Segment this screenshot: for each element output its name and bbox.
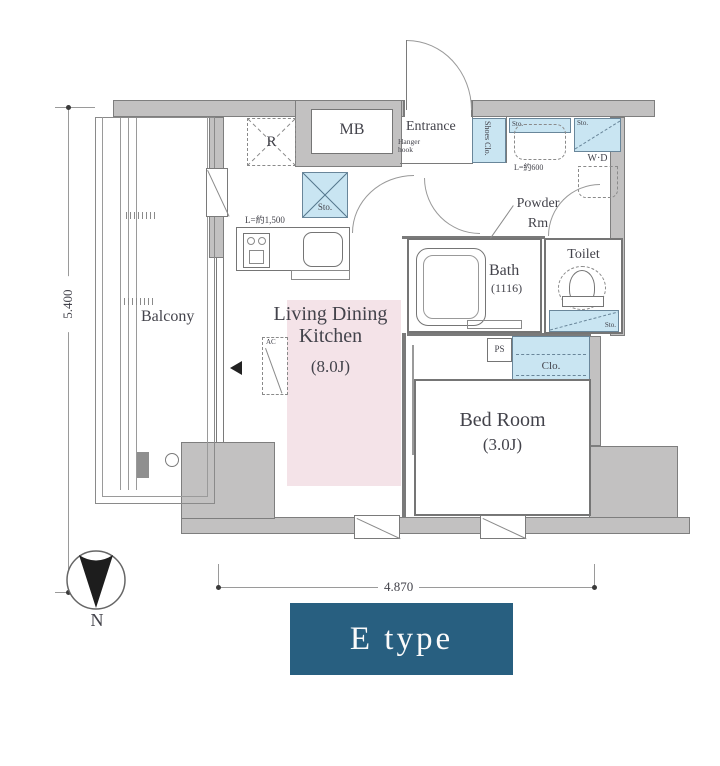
toilet-tank: [562, 296, 604, 307]
bathtub-inner: [423, 255, 479, 319]
closet: Clo.: [512, 336, 590, 382]
kitchen-storage: Sto.: [302, 172, 348, 218]
refrigerator-label: R: [248, 134, 295, 151]
bedroom-window-swing: [483, 518, 527, 539]
entrance-label: Entrance: [406, 119, 456, 134]
ldk-bedroom-sliding-panel: [412, 345, 414, 455]
ac-diagonal: [265, 348, 282, 393]
shoes-closet-label: Shoes Clo.: [482, 121, 491, 156]
closet-pipe-line-1: [516, 354, 586, 355]
powder-line1: Powder: [517, 196, 560, 211]
dim-left-dot-top: [66, 105, 71, 110]
wall-right-block: [589, 446, 678, 519]
powder-door-arc: [424, 178, 480, 234]
kitchen-sink: [303, 232, 343, 267]
kitchen-side-window: [206, 168, 228, 217]
bedroom-label: Bed Room: [416, 409, 589, 431]
ps-box: PS: [487, 338, 512, 362]
plan-type-label: E type: [350, 621, 453, 657]
balcony-glass-line-1: [120, 118, 121, 490]
wd-storage-label: Sto.: [577, 120, 588, 128]
balcony-partition: [137, 452, 149, 478]
ps-label: PS: [488, 345, 511, 355]
floor-plan-page: MB Balcony Entrance Hanger hook Shoes Cl…: [0, 0, 720, 766]
balcony-drain: [165, 453, 179, 467]
entrance-door-arc: [407, 40, 472, 110]
ldk-window-swing: [357, 518, 401, 539]
hanger-hook-label: Hanger hook: [398, 138, 436, 155]
refrigerator-space: R: [247, 118, 296, 166]
stove-burner-1: [247, 237, 255, 245]
wd-storage: Sto.: [574, 118, 621, 152]
bedroom: Bed Room (3.0J): [414, 379, 591, 516]
plan-type-box: E type: [290, 603, 513, 675]
bath-room: Bath (1116): [407, 238, 542, 333]
ldk-line2: Kitchen: [299, 325, 362, 347]
dim-height-label: 5.400: [61, 276, 75, 332]
balcony-hatch-1: [126, 212, 156, 219]
basin-dim-label: L=約600: [514, 164, 543, 173]
balcony-hatch-2: [124, 298, 154, 305]
dim-bottom-dot-left: [216, 585, 221, 590]
basin-outline: [514, 124, 566, 160]
mb-box: MB: [311, 109, 393, 154]
bath-label: Bath: [489, 262, 519, 280]
kitchen-counter: [236, 227, 350, 271]
powder-room-label: Powder Rm: [500, 194, 576, 234]
stove-grill: [249, 250, 264, 264]
ldk-line1: Living Dining: [274, 303, 388, 325]
genkan-line: [400, 163, 473, 164]
bath-counter: [467, 320, 522, 329]
wd-label: W·D: [574, 153, 621, 164]
kitchen-hall-door-arc: [352, 175, 414, 233]
balcony-label: Balcony: [141, 308, 194, 326]
shoes-right-wall: [506, 117, 507, 163]
kitchen-dim-label: L=約1,500: [245, 216, 285, 226]
shoes-closet: Shoes Clo.: [472, 118, 506, 163]
balcony-sliding-door: [216, 258, 224, 442]
stove: [243, 233, 270, 268]
kitchen-counter-ledge: [291, 270, 350, 280]
kitchen-window-swing-line: [207, 170, 229, 217]
wall-bottom-band: [181, 517, 690, 534]
dim-left-line: [68, 107, 69, 593]
bedroom-window: [480, 515, 526, 539]
toilet-label: Toilet: [546, 247, 621, 262]
dim-left-tick-top: [55, 107, 95, 108]
balcony-inner: [102, 117, 208, 497]
toilet-storage: Sto.: [549, 310, 619, 332]
dim-bottom-dot-right: [592, 585, 597, 590]
powder-line2: Rm: [528, 216, 548, 231]
ac-space: AC: [262, 337, 288, 395]
closet-pipe-line-2: [516, 375, 586, 376]
compass-north-label: N: [80, 611, 114, 631]
toilet-storage-label: Sto.: [605, 322, 616, 330]
mb-label: MB: [312, 121, 392, 139]
ldk-window: [354, 515, 400, 539]
stove-burner-2: [258, 237, 266, 245]
ac-label: AC: [266, 339, 276, 347]
bath-size-label: (1116): [491, 282, 522, 295]
entrance-jamb-left: [403, 100, 405, 117]
dim-width-label: 4.870: [378, 580, 419, 594]
closet-label: Clo.: [513, 360, 589, 372]
bedroom-size-label: (3.0J): [416, 436, 589, 455]
kitchen-storage-label: Sto.: [303, 203, 347, 213]
sleeve-vent-marker: [230, 361, 242, 375]
